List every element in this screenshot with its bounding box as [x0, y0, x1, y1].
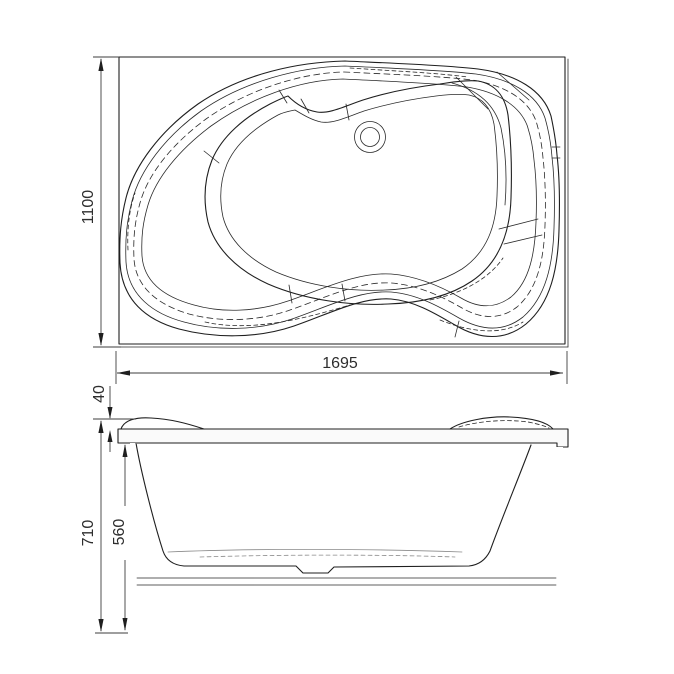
- dim-plan-width: 1695: [116, 351, 567, 384]
- bowl-outline-inner: [221, 94, 498, 290]
- dim-rim-rise-label: 40: [91, 385, 108, 403]
- front-right-headrest-contour: [459, 421, 549, 428]
- dim-plan-height: 1100: [80, 57, 121, 347]
- drain-inner-ring: [361, 128, 380, 147]
- seat-wedge-line-2: [504, 235, 542, 244]
- arrowhead-down: [123, 618, 128, 631]
- seat-back-curve: [452, 83, 506, 205]
- arrowhead-up: [108, 430, 113, 442]
- arrowhead-up: [98, 58, 103, 71]
- front-left-leg: [130, 443, 137, 635]
- rim-hidden-bottom-left: [205, 305, 350, 326]
- plan-view: [119, 57, 568, 347]
- tub-rim-outline-outer: [120, 61, 560, 337]
- dim-overall-height-label: 710: [80, 520, 97, 547]
- bowl-outline-outer: [205, 81, 511, 305]
- rim-tick-bottom-2: [342, 284, 345, 301]
- dim-plan-height-label: 1100: [80, 190, 97, 225]
- front-interior-bottom-hidden: [200, 555, 455, 557]
- front-left-headrest: [121, 418, 204, 429]
- bathtub-drawing-canvas: 1100 1695 40 710: [0, 0, 674, 674]
- front-right-headrest: [450, 417, 553, 429]
- seat-wedge-line-1: [499, 219, 538, 229]
- arrowhead-down: [98, 333, 103, 346]
- rim-tick-crest-right: [301, 99, 309, 113]
- dim-shell-height-label: 560: [111, 519, 128, 546]
- arrowhead-down: [98, 619, 103, 632]
- front-view: [118, 417, 568, 637]
- arrowhead-up: [98, 420, 103, 433]
- arrowhead-down: [108, 407, 113, 419]
- rim-hidden-bottom-right: [440, 320, 523, 331]
- rim-tick-bottom-right: [455, 321, 459, 337]
- dim-plan-width-label: 1695: [322, 355, 358, 372]
- front-right-leg: [556, 447, 563, 637]
- arrowhead-left: [117, 370, 130, 375]
- front-rim-bar: [118, 429, 568, 447]
- technical-drawing-page: 1100 1695 40 710: [0, 0, 674, 674]
- tub-rim-outline-4: [142, 79, 537, 310]
- front-shell-outline: [136, 443, 531, 573]
- dim-shell-height: 560: [110, 444, 129, 631]
- arrowhead-right: [550, 370, 563, 375]
- arrowhead-up: [123, 444, 128, 457]
- dimensions: 1100 1695 40 710: [80, 57, 567, 633]
- front-interior-bottom-line: [168, 549, 462, 552]
- drain-outer-ring: [355, 122, 386, 153]
